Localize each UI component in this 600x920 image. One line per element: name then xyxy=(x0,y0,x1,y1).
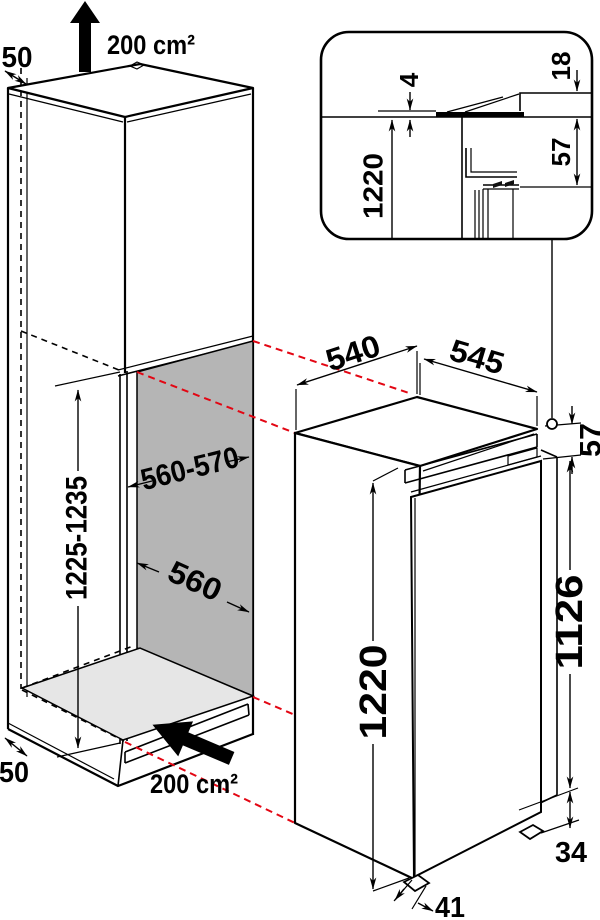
foot-inset-arrow-left xyxy=(395,889,404,900)
inset-height-label: 1220 xyxy=(358,153,389,219)
bottom-clearance-label: 50 xyxy=(0,757,29,789)
niche-height-label: 1225-1235 xyxy=(61,476,94,600)
bottom-vent-label: 200 cm² xyxy=(150,769,238,799)
plinth-extension xyxy=(541,820,579,833)
cabinet-outline xyxy=(8,62,253,786)
height-label: 1220 xyxy=(353,645,395,740)
top-vent-arrow-icon xyxy=(70,1,100,72)
projection-bottom-right xyxy=(253,697,295,715)
depth-label: 545 xyxy=(446,332,509,381)
fridge-door-face xyxy=(411,461,541,877)
inset-worktop-label: 18 xyxy=(546,52,576,81)
top-vent-label: 200 cm² xyxy=(107,30,195,60)
inset-seal-strip xyxy=(436,112,524,118)
door-height-label: 1126 xyxy=(549,575,591,670)
detail-callout-circle xyxy=(547,419,557,429)
front-foot xyxy=(404,875,429,891)
appliance-drawing xyxy=(295,397,557,891)
width-label: 540 xyxy=(321,328,384,378)
detail-inset: 4 18 57 1220 xyxy=(321,32,592,239)
bottom-clearance-arrows xyxy=(5,738,27,756)
cabinet-top-face xyxy=(8,64,253,117)
foot-inset-arrow-right xyxy=(418,903,433,911)
top-clearance-label: 50 xyxy=(2,42,33,74)
inset-clearance-label: 57 xyxy=(546,138,576,167)
inset-seal-gap-label: 4 xyxy=(394,72,424,87)
foot-inset-label: 41 xyxy=(435,892,465,920)
installation-diagram: 50 200 cm² 1225-1235 560-570 560 50 200 … xyxy=(0,0,600,920)
plinth-corner xyxy=(118,740,123,786)
rear-foot xyxy=(520,825,543,839)
top-gap-label: 57 xyxy=(575,423,600,457)
niche-soffit-hidden xyxy=(21,331,119,370)
plinth-height-label: 34 xyxy=(555,837,587,869)
